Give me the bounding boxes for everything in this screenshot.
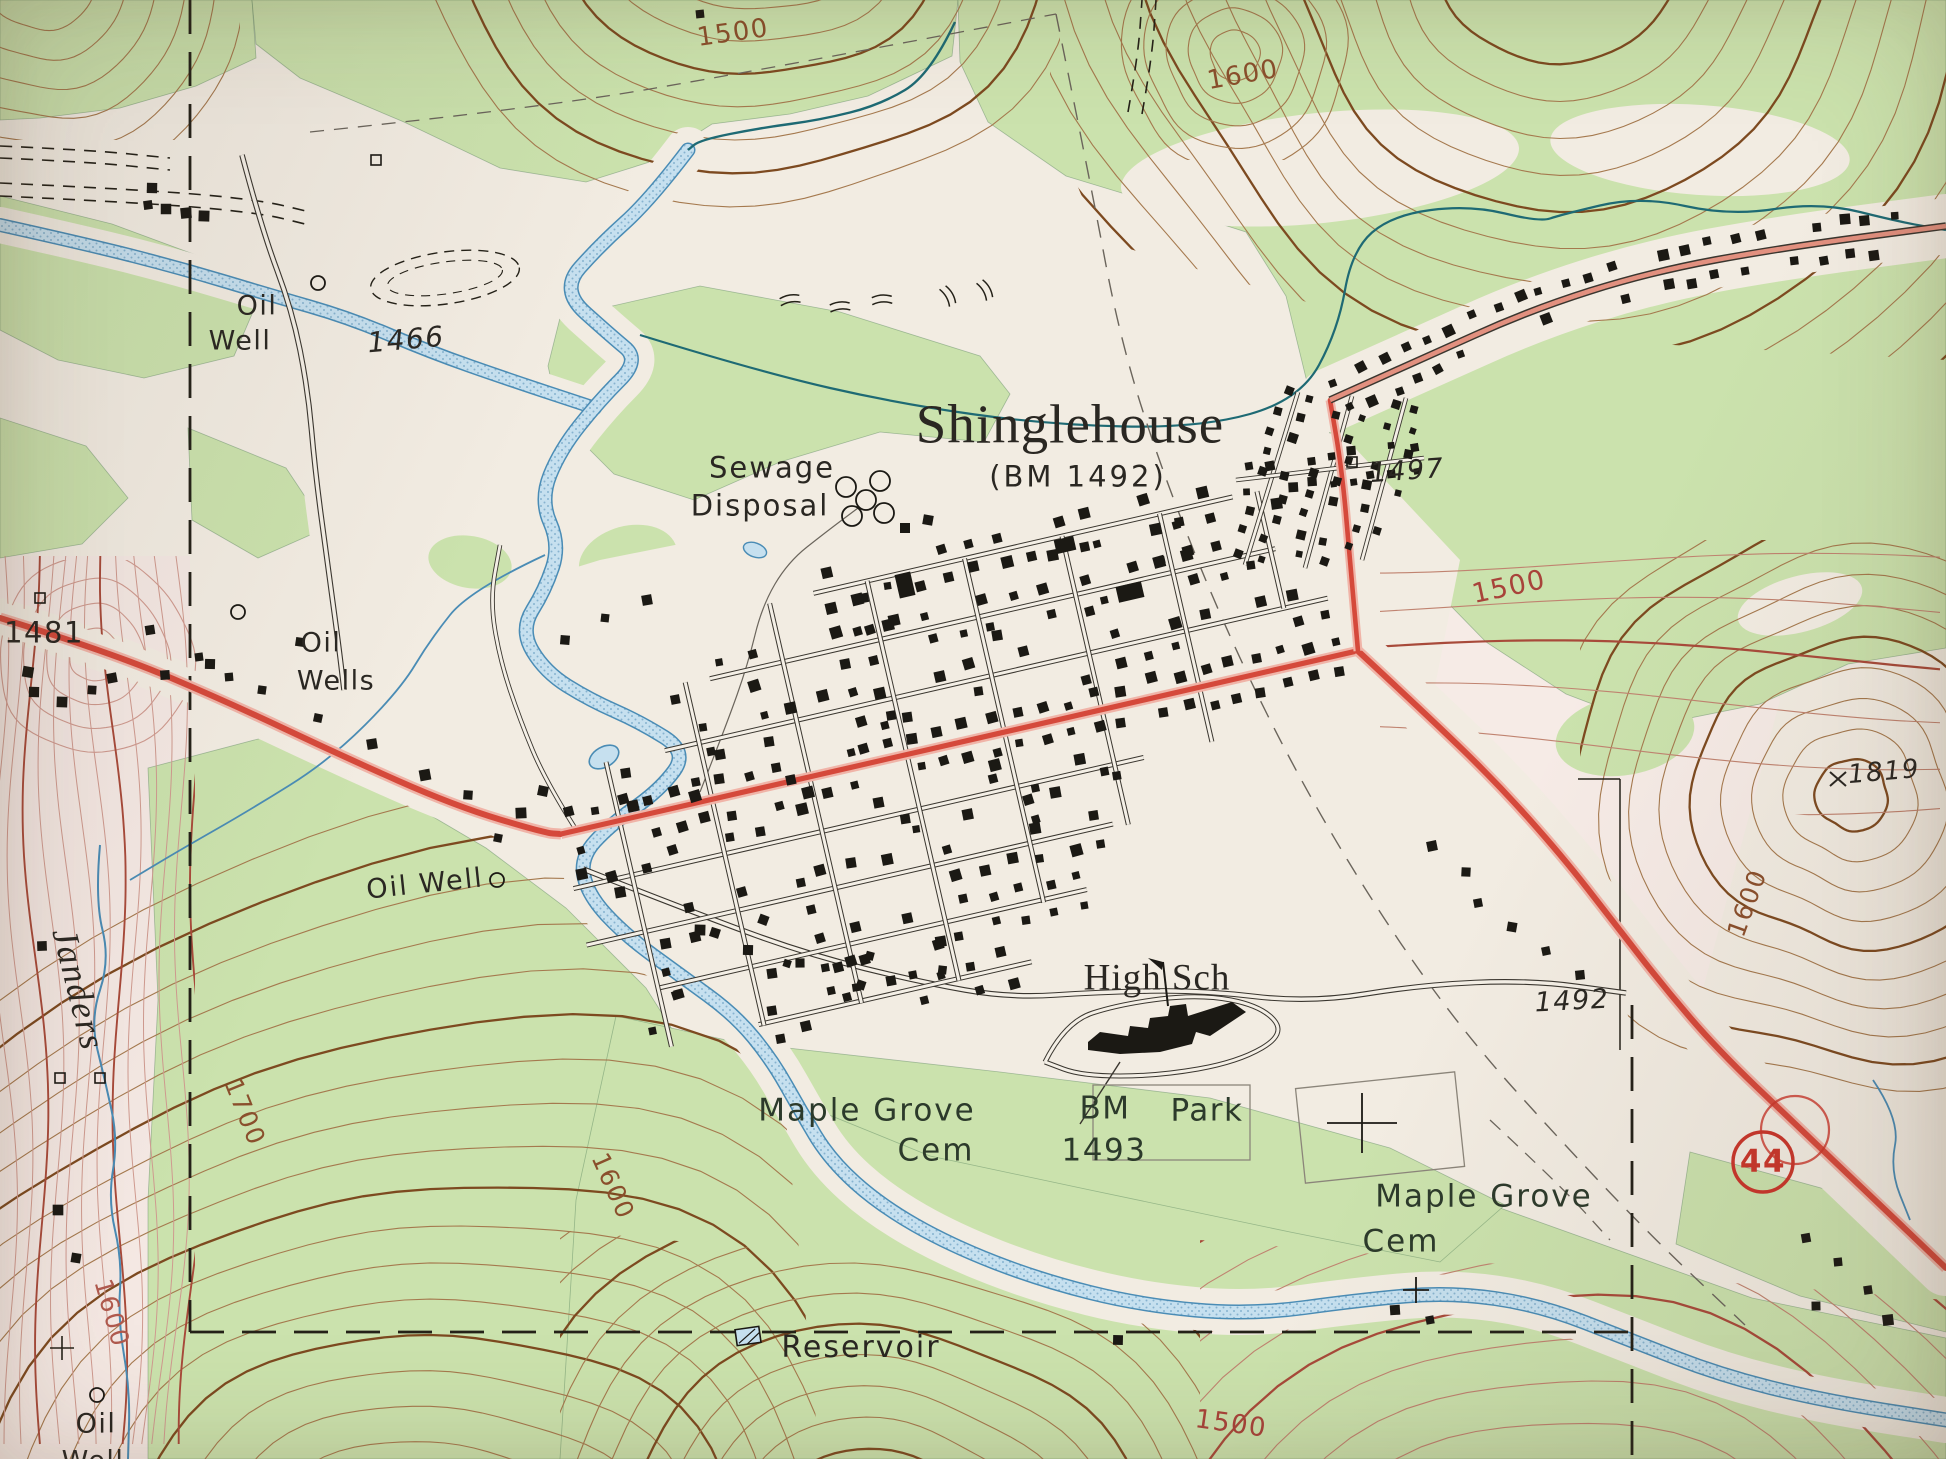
tank-icon — [870, 471, 890, 491]
reservoir-icon — [735, 1326, 761, 1345]
oval-track — [367, 242, 523, 314]
map-canvas — [0, 0, 1946, 1459]
oil-well-icon — [311, 276, 325, 290]
tank-icon — [856, 490, 876, 510]
tank-icon — [836, 477, 856, 497]
oil-well-icon — [231, 605, 245, 619]
topo-map: Shinglehouse OilWell146615001600Shingleh… — [0, 0, 1946, 1459]
